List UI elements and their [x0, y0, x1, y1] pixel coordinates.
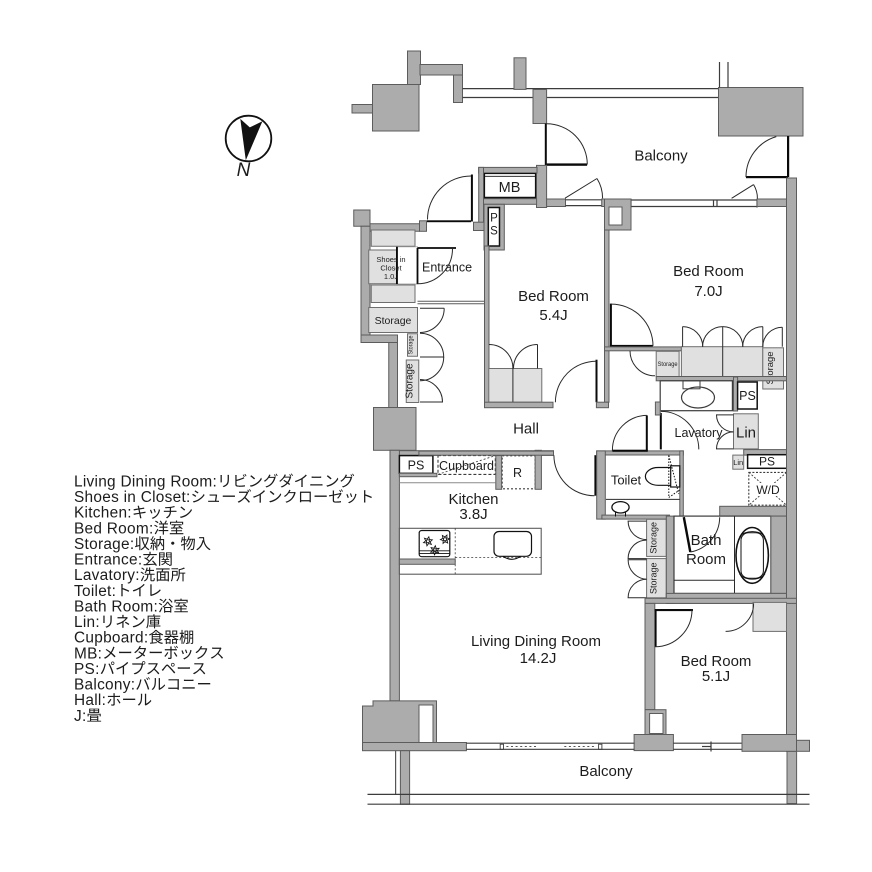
svg-text:Living Dining Room: Living Dining Room: [471, 633, 601, 650]
svg-text:Bed Room: Bed Room: [518, 288, 589, 305]
svg-text:5.4J: 5.4J: [539, 307, 567, 324]
svg-text:Balcony: Balcony: [579, 763, 633, 780]
svg-text:Entrance: Entrance: [422, 261, 472, 275]
svg-text:Hall:: Hall:: [74, 692, 106, 709]
svg-text:Balcony:: Balcony:: [74, 677, 135, 694]
svg-text:S: S: [490, 226, 498, 238]
svg-text:1.0J: 1.0J: [384, 272, 398, 281]
svg-text:Toilet:: Toilet:: [74, 583, 116, 600]
svg-text:MB: MB: [499, 180, 521, 196]
svg-text:PS: PS: [739, 389, 756, 403]
svg-text:Entrance:: Entrance:: [74, 552, 142, 569]
svg-text:N: N: [237, 160, 251, 181]
svg-text:Cupboard: Cupboard: [439, 459, 494, 473]
svg-text:Storage: Storage: [408, 335, 415, 354]
svg-text:Lavatory: Lavatory: [675, 426, 724, 440]
svg-text:P: P: [490, 213, 498, 225]
svg-text:Bed Room: Bed Room: [673, 263, 744, 280]
svg-text:Storage:: Storage:: [74, 536, 134, 553]
svg-text:Kitchen:: Kitchen:: [74, 505, 132, 522]
svg-text:Bed Room:: Bed Room:: [74, 520, 154, 537]
svg-text:Storage: Storage: [649, 522, 659, 554]
svg-text:PS: PS: [408, 459, 425, 473]
svg-text:PS: PS: [759, 455, 775, 469]
svg-text:Bath: Bath: [691, 532, 722, 549]
svg-text:Lavatory:: Lavatory:: [74, 567, 140, 584]
svg-text:Living Dining Room:: Living Dining Room:: [74, 474, 217, 491]
svg-text:Toilet: Toilet: [611, 473, 642, 488]
svg-text:14.2J: 14.2J: [520, 650, 557, 667]
svg-text:W/D: W/D: [756, 483, 780, 497]
svg-text:Hall: Hall: [513, 421, 539, 438]
svg-text:Storage: Storage: [375, 315, 412, 327]
svg-text:Lin: Lin: [733, 458, 743, 467]
svg-text:Storage: Storage: [658, 361, 678, 368]
svg-text:J:: J:: [74, 708, 87, 725]
svg-text:3.8J: 3.8J: [459, 506, 487, 523]
svg-text:Lin: Lin: [736, 425, 756, 442]
svg-text:MB:: MB:: [74, 645, 102, 662]
svg-text:Room: Room: [686, 551, 726, 568]
svg-text:PS:: PS:: [74, 661, 100, 678]
svg-text:Storage: Storage: [649, 562, 659, 594]
svg-text:Shoes in Closet:: Shoes in Closet:: [74, 489, 191, 506]
svg-text:Cupboard:: Cupboard:: [74, 630, 148, 647]
svg-text:7.0J: 7.0J: [694, 283, 722, 300]
svg-text:Lin:: Lin:: [74, 614, 100, 631]
svg-text:R: R: [513, 466, 522, 480]
svg-text:Bath Room:: Bath Room:: [74, 599, 158, 616]
svg-text:Storage: Storage: [405, 363, 416, 398]
svg-text:5.1J: 5.1J: [702, 668, 730, 685]
svg-text:Balcony: Balcony: [634, 148, 688, 165]
